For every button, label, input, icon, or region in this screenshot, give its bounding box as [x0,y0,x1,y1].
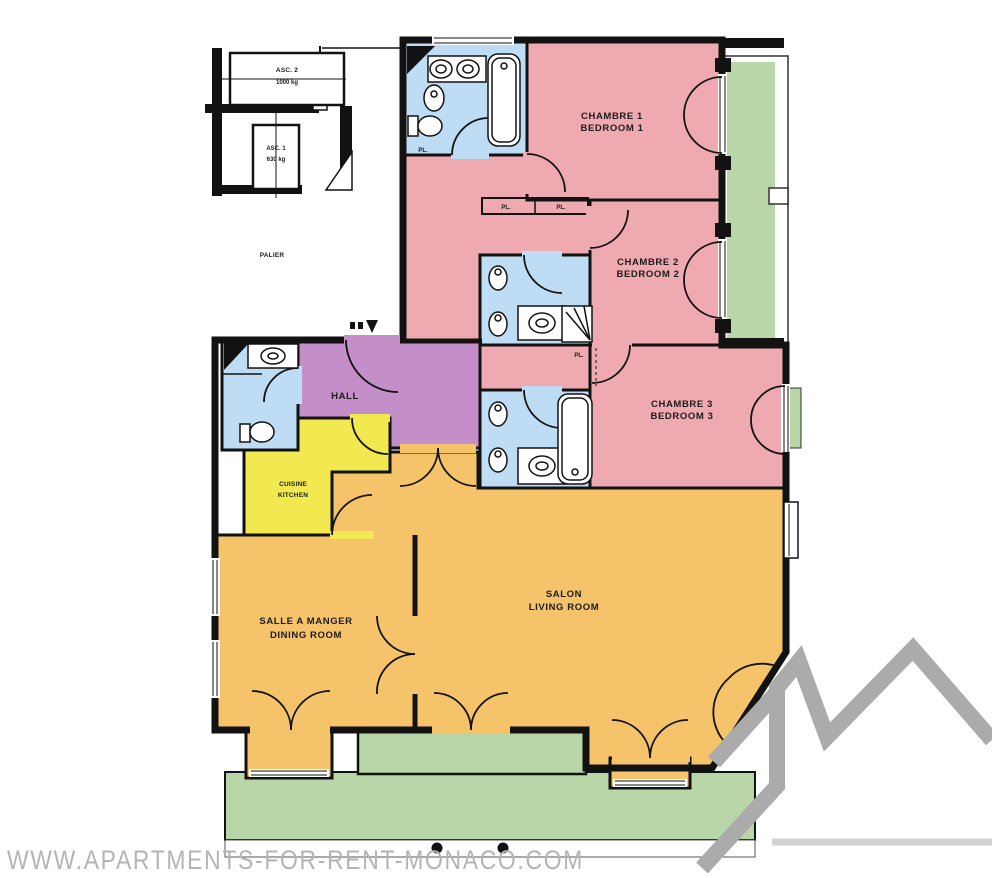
bedroom2-label-en: BEDROOM 2 [617,269,680,280]
landing-door-leaf [326,152,352,190]
balcony-east [727,62,775,342]
toilet-icon [250,422,274,442]
bedroom3-label-fr: CHAMBRE 3 [651,399,713,410]
living-label-fr: SALON [546,589,582,600]
bedroom2-label-fr: CHAMBRE 2 [617,257,679,268]
floor-plan-page: ASC. 2 1000 kg ASC. 1 630 kg PALIER PL. … [0,0,992,878]
bidet-icon [424,85,444,111]
landing-label: PALIER [260,252,285,259]
corridor-area-lower [480,345,592,390]
toilet-tank [240,424,250,442]
wall-balcony-top [722,38,784,48]
kitchen-label-en: KITCHEN [278,492,308,499]
elevator-1-box: ASC. 2 1000 kg [214,53,346,105]
bedroom3-label-en: BEDROOM 3 [651,411,714,422]
dining-label-fr: SALLE A MANGER [259,616,352,627]
elevator-2-box: ASC. 1 630 kg [253,112,299,198]
elevator-2-name: ASC. 1 [266,146,286,152]
watermark-text: WWW.APARTMENTS-FOR-RENT-MONACO.COM [7,845,584,875]
floor-plan-svg: ASC. 2 1000 kg ASC. 1 630 kg PALIER PL. … [0,0,992,878]
elevator-1-name: ASC. 2 [276,67,298,74]
elevator-2-capacity: 630 kg [267,157,286,163]
hall-label: HALL [331,391,359,402]
closet-label: PL. [418,148,428,154]
balcony-divider [769,188,788,204]
closet-label: PL. [501,205,511,211]
elevator-1-capacity: 1000 kg [276,80,298,86]
toilet-tank [408,116,418,136]
toilet-icon [418,116,442,136]
bedroom1-label-en: BEDROOM 1 [581,123,644,134]
entrance-marker-icon [350,320,378,333]
bedroom1-label-fr: CHAMBRE 1 [581,111,643,122]
closet-label: PL. [556,205,566,211]
terrace-middle [358,730,586,774]
living-label-en: LIVING ROOM [529,602,599,613]
kitchen-label-fr: CUISINE [279,481,307,488]
dining-label-en: DINING ROOM [270,630,342,641]
closet-label: PL. [574,353,584,359]
